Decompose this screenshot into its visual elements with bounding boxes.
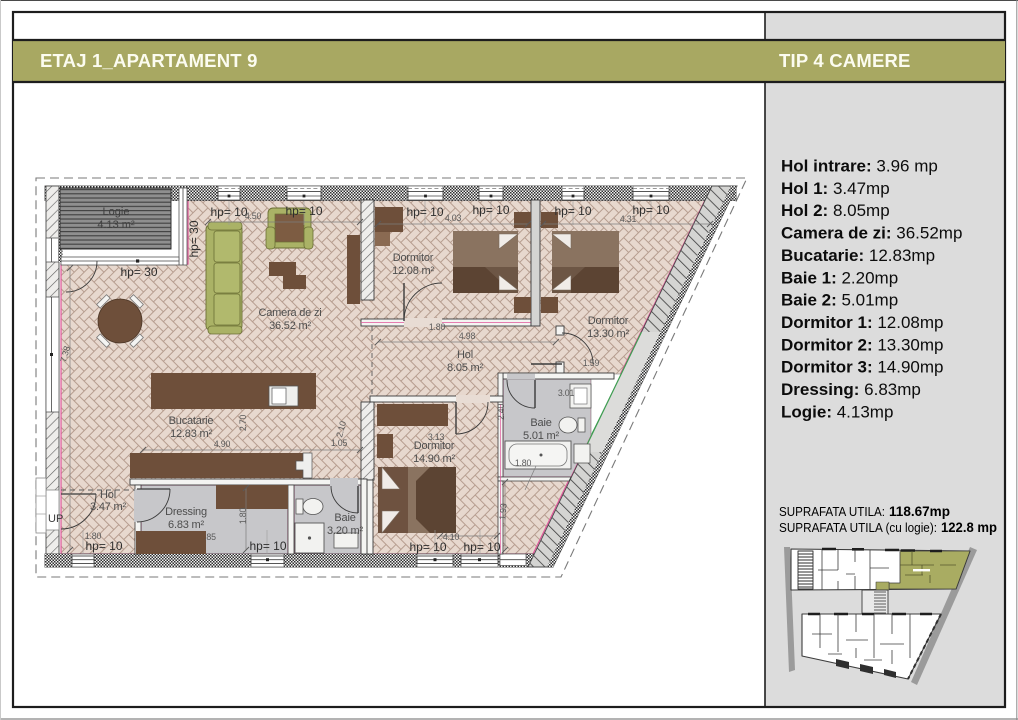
- svg-text:hp= 30: hp= 30: [187, 220, 201, 257]
- svg-text:5.01 m²: 5.01 m²: [523, 430, 559, 442]
- svg-text:12.83 m²: 12.83 m²: [170, 428, 212, 440]
- svg-text:2.40: 2.40: [496, 404, 506, 421]
- svg-text:1.93: 1.93: [497, 503, 508, 520]
- svg-text:3.20 m²: 3.20 m²: [327, 525, 363, 537]
- svg-text:hp= 10: hp= 10: [409, 540, 446, 554]
- svg-text:3.01: 3.01: [558, 388, 575, 398]
- svg-text:Hol: Hol: [457, 349, 473, 361]
- svg-text:1.59: 1.59: [583, 358, 600, 368]
- svg-text:SUPRAFATA UTILA:118.67mp: SUPRAFATA UTILA:118.67mp: [779, 503, 950, 519]
- svg-text:ETAJ 1_APARTAMENT 9: ETAJ 1_APARTAMENT 9: [40, 50, 258, 71]
- svg-text:hp= 10: hp= 10: [472, 203, 509, 217]
- svg-text:hp= 10: hp= 10: [463, 540, 500, 554]
- svg-text:hp= 10: hp= 10: [632, 203, 669, 217]
- svg-text:14.90 m²: 14.90 m²: [413, 453, 455, 465]
- svg-text:hp= 10: hp= 10: [85, 539, 122, 553]
- svg-text:4.98: 4.98: [459, 331, 476, 341]
- svg-text:Baie 2: 5.01mp: Baie 2: 5.01mp: [781, 291, 898, 310]
- svg-text:Hol intrare: 3.96 mp: Hol intrare: 3.96 mp: [781, 157, 938, 176]
- svg-text:4.03: 4.03: [445, 213, 462, 223]
- svg-text:Dormitor 1: 12.08mp: Dormitor 1: 12.08mp: [781, 313, 944, 332]
- svg-text:Dressing: Dressing: [165, 506, 207, 518]
- svg-text:3.47 m²: 3.47 m²: [90, 501, 126, 513]
- svg-text:4.10: 4.10: [443, 532, 460, 542]
- svg-text:Dormitor: Dormitor: [393, 252, 434, 264]
- svg-text:Baie 1: 2.20mp: Baie 1: 2.20mp: [781, 268, 898, 287]
- svg-text:Camera de zi: 36.52mp: Camera de zi: 36.52mp: [781, 224, 962, 243]
- svg-text:4.31: 4.31: [620, 214, 637, 224]
- svg-text:Dormitor 3: 14.90mp: Dormitor 3: 14.90mp: [781, 358, 944, 377]
- svg-text:Hol 1: 3.47mp: Hol 1: 3.47mp: [781, 179, 890, 198]
- svg-text:1.80: 1.80: [515, 458, 532, 468]
- svg-text:36.52 m²: 36.52 m²: [269, 320, 311, 332]
- svg-text:13.30 m²: 13.30 m²: [587, 328, 629, 340]
- svg-text:4.13 m²: 4.13 m²: [97, 219, 135, 231]
- svg-text:1.80: 1.80: [238, 508, 248, 525]
- svg-text:1.05: 1.05: [331, 438, 348, 448]
- svg-text:UP: UP: [48, 513, 63, 525]
- svg-text:6.83 m²: 6.83 m²: [168, 519, 204, 531]
- svg-text:Dressing: 6.83mp: Dressing: 6.83mp: [781, 380, 921, 399]
- svg-text:Bucatarie: Bucatarie: [169, 415, 214, 427]
- svg-text:Dormitor 2: 13.30mp: Dormitor 2: 13.30mp: [781, 335, 944, 354]
- svg-text:.85: .85: [204, 532, 216, 542]
- svg-text:Dormitor: Dormitor: [588, 315, 629, 327]
- svg-text:hp= 10: hp= 10: [554, 204, 591, 218]
- svg-text:TIP 4 CAMERE: TIP 4 CAMERE: [779, 50, 911, 71]
- svg-text:Baie: Baie: [334, 512, 355, 524]
- svg-text:hp= 10: hp= 10: [406, 205, 443, 219]
- svg-text:3.13: 3.13: [428, 432, 445, 442]
- svg-text:SUPRAFATA UTILA (cu logie):12: SUPRAFATA UTILA (cu logie):122.8 mp: [779, 519, 997, 535]
- svg-text:Hol 2: 8.05mp: Hol 2: 8.05mp: [781, 201, 890, 220]
- svg-text:hp= 10: hp= 10: [210, 205, 247, 219]
- svg-text:2.70: 2.70: [238, 415, 248, 432]
- svg-text:4.90: 4.90: [214, 439, 231, 449]
- svg-text:hp= 10: hp= 10: [285, 204, 322, 218]
- svg-text:8.05 m²: 8.05 m²: [447, 362, 483, 374]
- svg-text:Logie: Logie: [103, 206, 130, 218]
- svg-text:1.80: 1.80: [429, 322, 446, 332]
- svg-text:1.80: 1.80: [85, 531, 102, 541]
- svg-text:4.50: 4.50: [245, 211, 262, 221]
- svg-text:Camera de zi: Camera de zi: [258, 307, 321, 319]
- svg-text:hp= 30: hp= 30: [120, 265, 157, 279]
- svg-text:12.08 m²: 12.08 m²: [392, 265, 434, 277]
- svg-text:Bucatarie: 12.83mp: Bucatarie: 12.83mp: [781, 246, 935, 265]
- svg-text:hp= 10: hp= 10: [249, 539, 286, 553]
- svg-text:Hol: Hol: [100, 489, 116, 501]
- svg-text:Baie: Baie: [530, 417, 551, 429]
- svg-text:Logie: 4.13mp: Logie: 4.13mp: [781, 402, 893, 421]
